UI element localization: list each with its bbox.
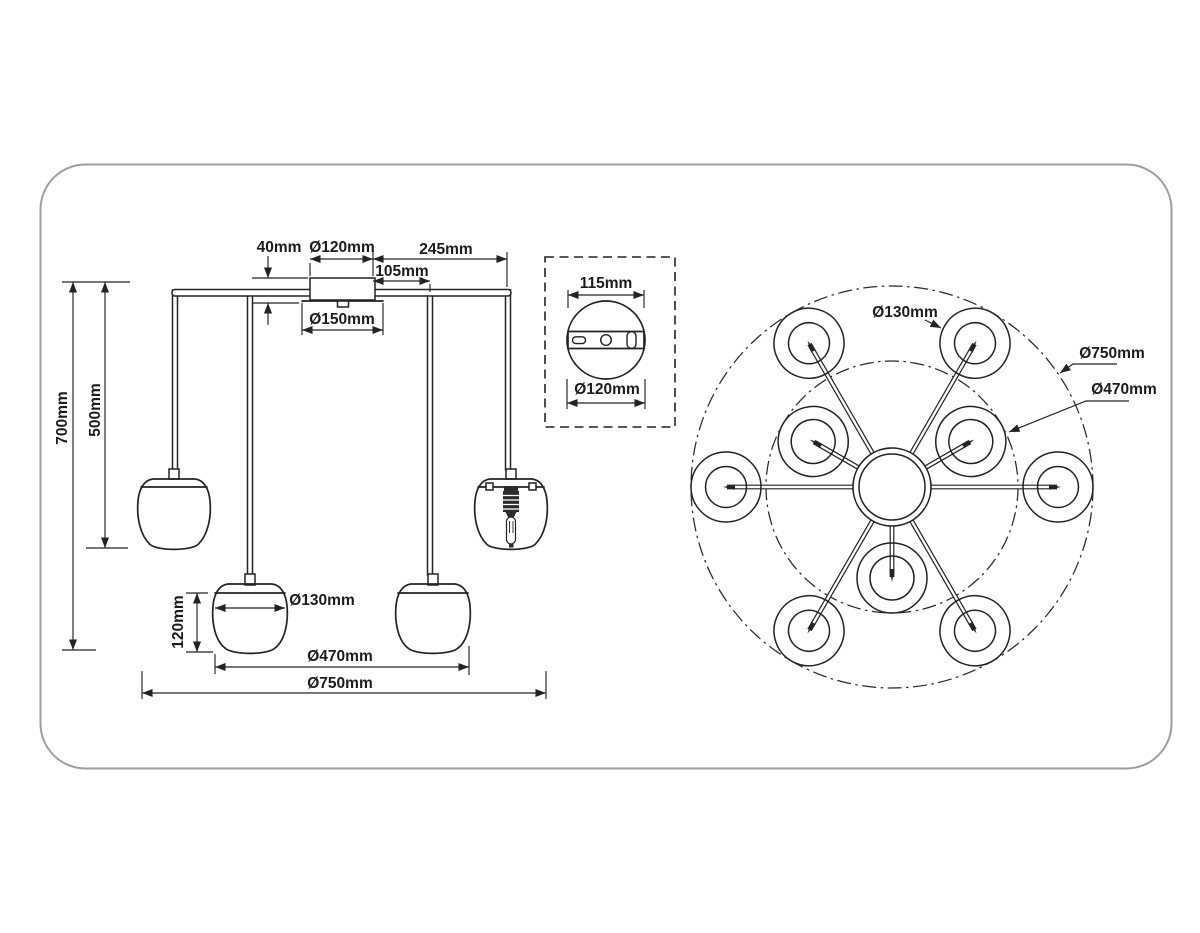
plan-arm-outer-upper-left [761,295,904,473]
dim-canopy-detail-diameter: Ø120mm [567,379,645,409]
dim-label-120mm: 120mm [170,595,187,648]
plan-label-750mm: Ø750mm [1079,345,1144,362]
dim-canopy-height: 40mm [252,239,308,325]
front-elevation-view: 700mm 500mm 40mm Ø120mm 245mm [54,239,547,699]
upper-right-shade [475,469,548,549]
plan-arm-outer-upper-right [880,295,1023,473]
dim-label-canopy-120mm: Ø120mm [309,239,374,256]
dim-inner-spread: Ø470mm [215,646,469,675]
upper-left-shade [138,469,211,549]
label-plan-outer-diameter: Ø750mm [1060,345,1145,373]
dim-inner-arm-length: 105mm [373,263,430,292]
dim-bracket-width: 115mm [568,275,644,308]
dim-label-150mm: Ø150mm [309,311,374,328]
dim-label-detail-120mm: Ø120mm [574,381,639,398]
dim-upper-shade-drop: 500mm [86,282,128,548]
mount-slot-left [573,337,586,344]
dim-outer-spread: Ø750mm [142,671,546,699]
plan-arm-outer-lower-right [880,501,1023,679]
plan-label-470mm: Ø470mm [1091,381,1156,398]
dim-label-130mm: Ø130mm [289,592,354,609]
dim-label-115mm: 115mm [580,275,633,292]
plan-arm-outer-left [691,452,856,522]
dim-label-245mm: 245mm [419,241,472,258]
bulb-socket [486,483,536,517]
canopy-detail-view: 115mm Ø120mm [545,257,675,427]
lower-left-shade [213,574,288,653]
plan-arm-inner-bottom [857,523,927,613]
dim-canopy-diameter: Ø120mm [309,239,374,276]
drawing-frame [41,165,1172,769]
mount-hole-center [601,335,612,346]
plan-arm-outer-right [928,452,1093,522]
lower-right-shade [396,574,471,653]
plan-label-130mm: Ø130mm [872,304,937,321]
ceiling-canopy [302,278,383,307]
dim-label-500mm: 500mm [87,383,104,436]
plan-arm-outer-lower-left [761,501,904,679]
dim-label-470mm: Ø470mm [307,648,372,665]
top-plan-view: Ø130mm Ø750mm Ø470mm [691,286,1157,688]
plan-central-hub [853,448,931,526]
dim-shade-height: 120mm [170,593,213,652]
dim-label-700mm: 700mm [54,391,71,444]
technical-drawing: 700mm 500mm 40mm Ø120mm 245mm [0,0,1200,933]
drop-rods [173,290,511,575]
spec-sheet-page: 700mm 500mm 40mm Ø120mm 245mm [0,0,1200,933]
canopy-top-view [567,301,645,379]
dim-label-750mm: Ø750mm [307,675,372,692]
dim-label-40mm: 40mm [257,239,302,256]
mount-slot-right [627,332,636,349]
label-plan-shade-diameter: Ø130mm [872,304,941,328]
dim-total-drop: 700mm [54,282,130,650]
light-bulb [507,517,516,548]
dim-label-105mm: 105mm [375,263,428,280]
dim-plate-diameter: Ø150mm [302,303,383,335]
